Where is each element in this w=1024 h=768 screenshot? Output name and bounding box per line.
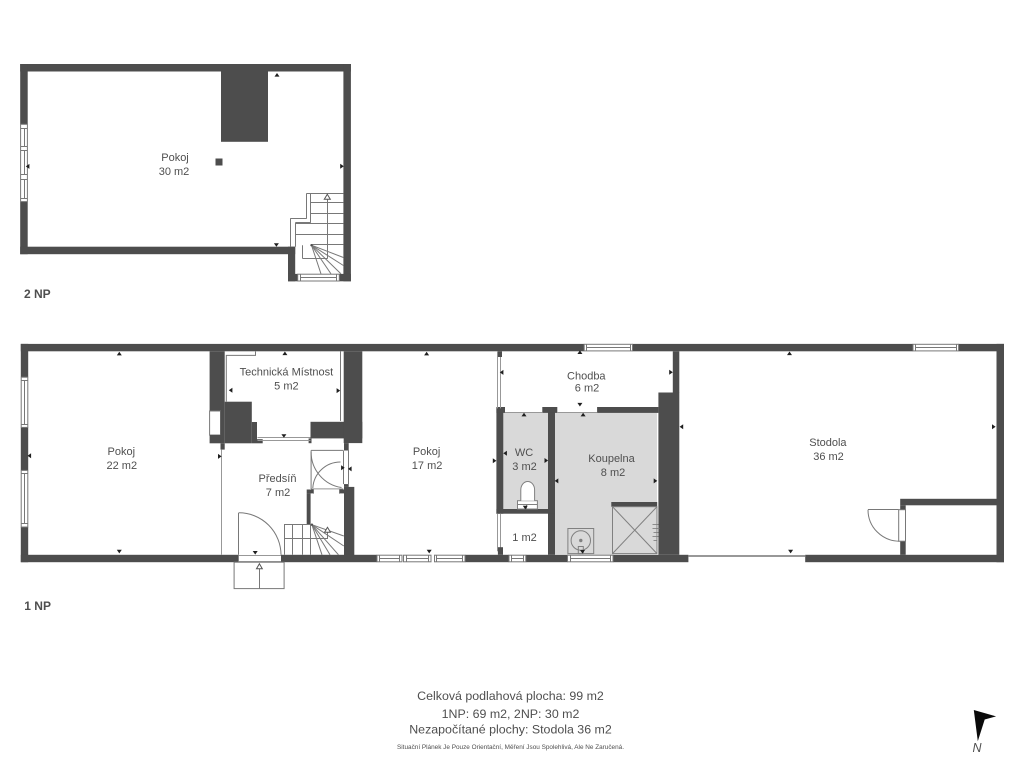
svg-text:5 m2: 5 m2 [274,381,298,393]
svg-text:Chodba: Chodba [567,371,606,383]
svg-text:Situační Plánek Je Pouze Orien: Situační Plánek Je Pouze Orientační, Měř… [397,744,624,751]
svg-text:Technická Místnost: Technická Místnost [240,367,334,379]
svg-text:2 NP: 2 NP [24,287,51,301]
svg-text:8 m2: 8 m2 [601,467,625,479]
svg-text:3 m2: 3 m2 [512,461,536,473]
svg-text:Koupelna: Koupelna [588,453,635,465]
svg-text:Předsíň: Předsíň [259,473,297,485]
svg-text:Pokoj: Pokoj [161,152,189,164]
svg-text:7 m2: 7 m2 [266,487,290,499]
svg-text:Nezapočítané plochy: Stodola 3: Nezapočítané plochy: Stodola 36 m2 [409,723,612,737]
svg-text:1 NP: 1 NP [24,599,51,613]
svg-text:WC: WC [515,447,533,459]
svg-text:1 m2: 1 m2 [512,532,536,544]
svg-text:Pokoj: Pokoj [108,446,136,458]
svg-text:17 m2: 17 m2 [412,460,443,472]
svg-text:N: N [973,741,983,755]
svg-text:36 m2: 36 m2 [813,451,844,463]
svg-text:22 m2: 22 m2 [107,460,138,472]
svg-text:Celková podlahová plocha: 99 m: Celková podlahová plocha: 99 m2 [417,689,604,703]
svg-text:Pokoj: Pokoj [413,446,441,458]
svg-text:1NP: 69 m2, 2NP: 30 m2: 1NP: 69 m2, 2NP: 30 m2 [442,707,580,721]
svg-text:30 m2: 30 m2 [159,166,190,178]
svg-text:6 m2: 6 m2 [575,383,599,395]
svg-text:Stodola: Stodola [809,437,847,449]
